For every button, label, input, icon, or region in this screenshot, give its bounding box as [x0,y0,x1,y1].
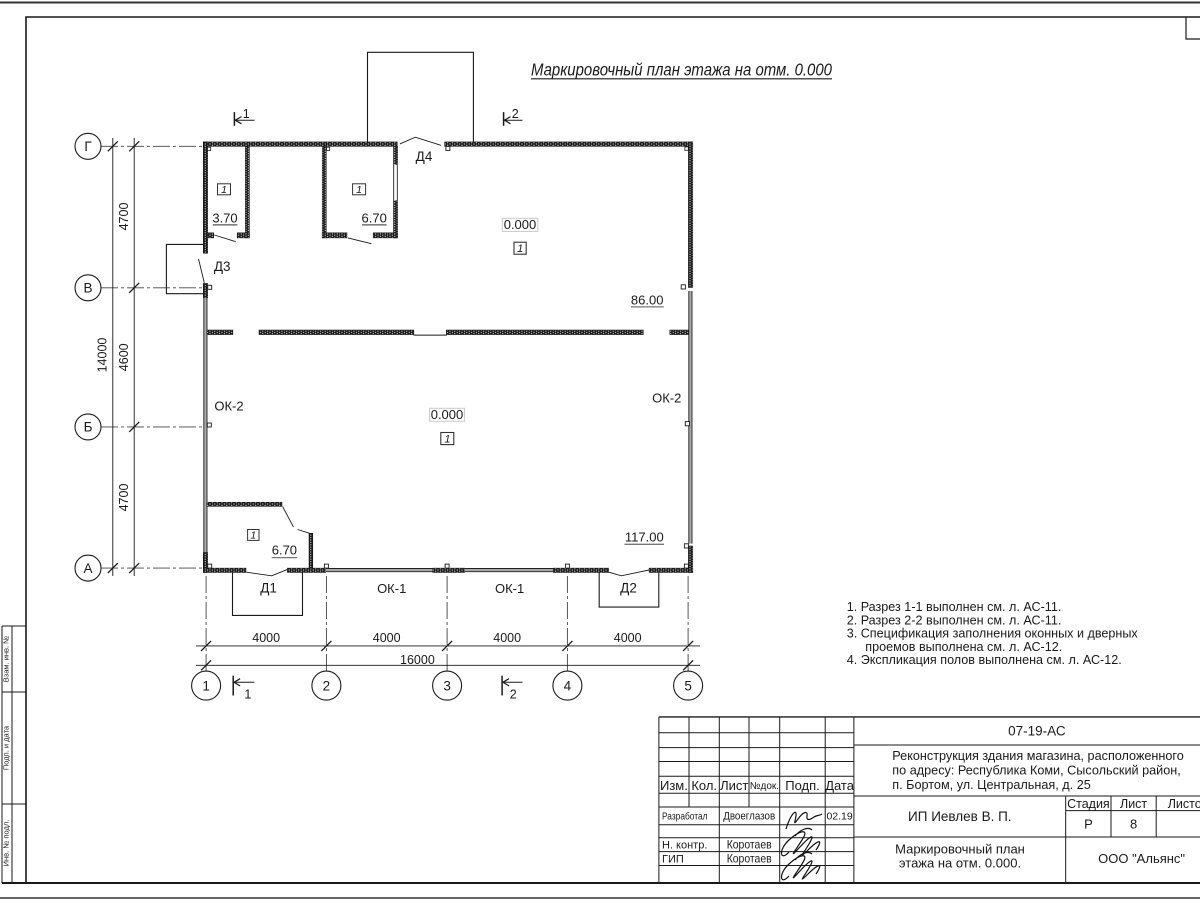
svg-text:2: 2 [510,688,517,702]
svg-text:5: 5 [684,678,692,693]
svg-text:1: 1 [250,529,256,541]
svg-text:6.70: 6.70 [362,210,387,225]
svg-text:1: 1 [243,107,250,121]
svg-text:14000: 14000 [96,338,110,373]
svg-text:Лист: Лист [720,778,748,793]
svg-text:Коротаев: Коротаев [727,838,772,852]
svg-text:1: 1 [356,184,362,196]
svg-text:ОК-1: ОК-1 [377,581,406,596]
svg-text:Г: Г [84,139,92,154]
svg-text:1: 1 [517,243,523,255]
svg-text:В: В [83,281,92,296]
svg-text:8: 8 [1130,817,1137,832]
svg-text:ОК-2: ОК-2 [214,399,243,414]
svg-text:Д4: Д4 [416,149,433,164]
svg-text:4700: 4700 [117,484,131,512]
svg-text:4700: 4700 [117,203,131,231]
svg-text:4000: 4000 [373,631,401,645]
svg-text:4000: 4000 [493,631,521,645]
svg-text:07-19-АС: 07-19-АС [1008,724,1066,739]
svg-text:Подп. и дата: Подп. и дата [2,725,11,770]
svg-text:1. Разрез 1-1 выполнен см. л.: 1. Разрез 1-1 выполнен см. л. АС-11. [847,600,1062,614]
svg-text:86.00: 86.00 [631,292,664,307]
svg-text:Подп.: Подп. [785,778,820,793]
svg-text:Кол.: Кол. [691,778,717,793]
svg-text:3. Спецификация заполнения око: 3. Спецификация заполнения оконных и две… [847,627,1139,641]
svg-text:Листов: Листов [1168,797,1200,811]
svg-text:Дата: Дата [825,778,855,793]
svg-text:Н. контр.: Н. контр. [662,840,707,852]
svg-text:3: 3 [443,678,451,693]
svg-text:2. Разрез 2-2 выполнен см. л.: 2. Разрез 2-2 выполнен см. л. АС-11. [847,613,1062,627]
svg-text:Д1: Д1 [260,581,277,596]
svg-text:по адресу: Республика Коми, Сы: по адресу: Республика Коми, Сысольский р… [892,763,1181,778]
svg-text:Реконструкция здания магазина,: Реконструкция здания магазина, расположе… [892,748,1184,763]
svg-text:Изм.: Изм. [660,778,688,793]
svg-text:Взам. инв. №: Взам. инв. № [2,636,11,682]
svg-text:0.000: 0.000 [431,407,464,422]
svg-text:3.70: 3.70 [212,210,237,225]
svg-text:4: 4 [564,678,572,693]
svg-text:1: 1 [221,184,227,196]
svg-text:Лист: Лист [1120,797,1147,811]
svg-text:Разработал: Разработал [662,811,708,823]
svg-text:2: 2 [512,107,519,121]
svg-text:Коротаев: Коротаев [727,852,772,866]
svg-text:ОК-1: ОК-1 [495,581,524,596]
svg-text:ОК-2: ОК-2 [652,391,681,406]
svg-text:6.70: 6.70 [272,543,297,558]
svg-text:4. Экспликация полов выполнена: 4. Экспликация полов выполнена см. л. АС… [847,653,1122,667]
svg-text:0.000: 0.000 [504,217,537,232]
svg-text:этажа на отм. 0.000.: этажа на отм. 0.000. [899,856,1021,871]
svg-text:№док.: №док. [750,781,779,792]
svg-text:1: 1 [244,688,251,702]
svg-text:Д3: Д3 [214,259,231,274]
svg-text:ГИП: ГИП [662,854,684,866]
svg-text:А: А [83,561,92,576]
svg-text:Инв. № подл.: Инв. № подл. [2,820,11,867]
svg-text:1: 1 [444,433,450,445]
svg-text:ООО "Альянс": ООО "Альянс" [1098,851,1185,866]
svg-text:Д2: Д2 [620,581,637,596]
svg-text:4000: 4000 [252,631,280,645]
svg-text:ИП Иевлев В. П.: ИП Иевлев В. П. [908,809,1012,824]
svg-text:02.19: 02.19 [826,811,852,823]
svg-text:4600: 4600 [117,343,131,371]
svg-text:1: 1 [202,678,210,693]
svg-text:Стадия: Стадия [1067,797,1110,811]
svg-text:Б: Б [84,420,93,435]
svg-text:117.00: 117.00 [625,529,664,544]
svg-text:Двоеглазов: Двоеглазов [723,811,775,823]
svg-text:Маркировочный план этажа на от: Маркировочный план этажа на отм. 0.000 [531,60,832,80]
svg-text:16000: 16000 [400,653,435,667]
svg-text:2: 2 [323,678,331,693]
svg-text:проемов выполнена см. л. АС-12: проемов выполнена см. л. АС-12. [865,640,1062,654]
svg-text:4000: 4000 [614,631,642,645]
svg-text:Маркировочный план: Маркировочный план [895,841,1025,856]
svg-text:Р: Р [1084,817,1093,832]
svg-text:п. Бортом, ул. Центральная, д.: п. Бортом, ул. Центральная, д. 25 [892,777,1091,792]
